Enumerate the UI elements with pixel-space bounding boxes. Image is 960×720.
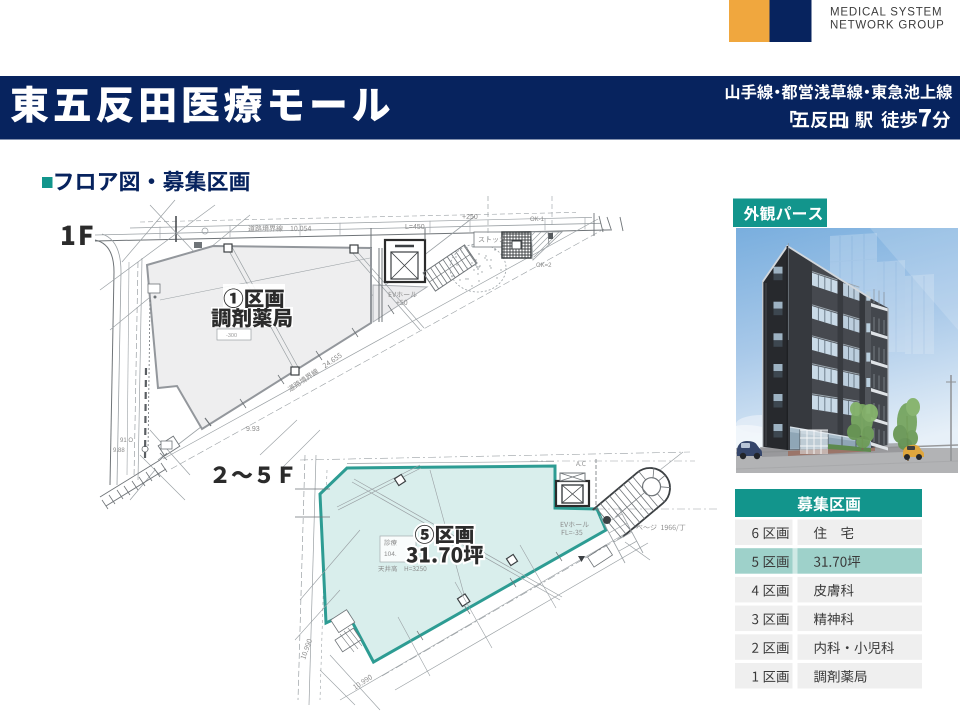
svg-text:104.: 104.: [384, 551, 397, 558]
svg-text:91 O: 91 O: [120, 438, 133, 444]
svg-text:-300: -300: [226, 333, 237, 339]
svg-text:OK-1: OK-1: [530, 217, 545, 223]
svg-text:NETWORK GROUP: NETWORK GROUP: [830, 20, 945, 32]
svg-text:9.88: 9.88: [113, 448, 125, 454]
svg-text:L=450: L=450: [405, 224, 425, 231]
svg-text:OK=2: OK=2: [536, 263, 552, 269]
svg-text:9.93: 9.93: [246, 426, 260, 433]
svg-text:MEDICAL SYSTEM: MEDICAL SYSTEM: [830, 7, 942, 19]
